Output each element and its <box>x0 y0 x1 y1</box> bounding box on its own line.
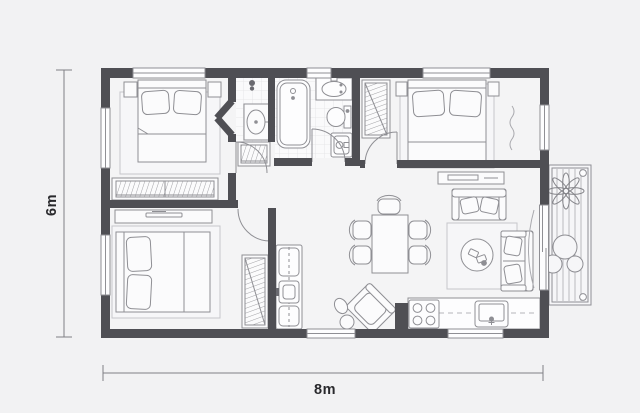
nightstand <box>488 82 499 96</box>
deck-light <box>580 170 587 177</box>
height-dimension-label: 6m <box>44 194 60 216</box>
coffee-table <box>461 239 493 271</box>
headboard <box>408 80 486 88</box>
loveseat <box>452 189 506 220</box>
wardrobe <box>112 178 218 200</box>
washing-machine <box>331 133 352 157</box>
nightstand <box>124 82 137 97</box>
cushion <box>504 236 523 257</box>
pillow <box>141 90 170 115</box>
wardrobe <box>242 255 268 328</box>
sideboard <box>438 172 504 184</box>
window <box>448 329 503 338</box>
stove <box>409 300 439 328</box>
balcony <box>544 165 591 305</box>
washbasin <box>316 76 352 100</box>
bathtub <box>277 80 310 148</box>
window <box>423 68 490 78</box>
wardrobe <box>362 80 390 138</box>
dining-table <box>372 215 408 273</box>
pillow <box>412 90 445 117</box>
window <box>307 68 331 78</box>
sofa <box>501 231 533 291</box>
headboard <box>138 80 206 88</box>
width-dimension-label: 8m <box>314 382 336 398</box>
window <box>101 108 110 168</box>
floor-plan: 6m 8m <box>0 0 640 413</box>
sliding-door <box>540 205 549 290</box>
headboard <box>116 232 124 312</box>
nightstand <box>208 82 221 97</box>
pillow <box>449 90 482 117</box>
side-table <box>340 315 354 329</box>
laundry-unit <box>273 245 302 329</box>
kitchen-sink <box>475 301 508 327</box>
pillow <box>173 90 202 115</box>
window <box>540 105 549 150</box>
double-bed <box>124 80 221 162</box>
floor-plan-drawing: 6m 8m <box>0 0 640 413</box>
window <box>133 68 205 78</box>
window <box>307 329 355 338</box>
nightstand <box>396 82 407 96</box>
double-bed <box>116 232 210 312</box>
pillow <box>126 274 152 309</box>
window <box>101 235 110 295</box>
toilet <box>327 106 351 128</box>
vanity-sink <box>244 104 272 140</box>
dresser <box>115 210 212 223</box>
deck-light <box>580 294 587 301</box>
double-bed <box>396 80 499 166</box>
cushion <box>504 264 523 285</box>
cushion <box>480 196 500 214</box>
cushion <box>460 196 480 214</box>
pillow <box>126 236 152 271</box>
